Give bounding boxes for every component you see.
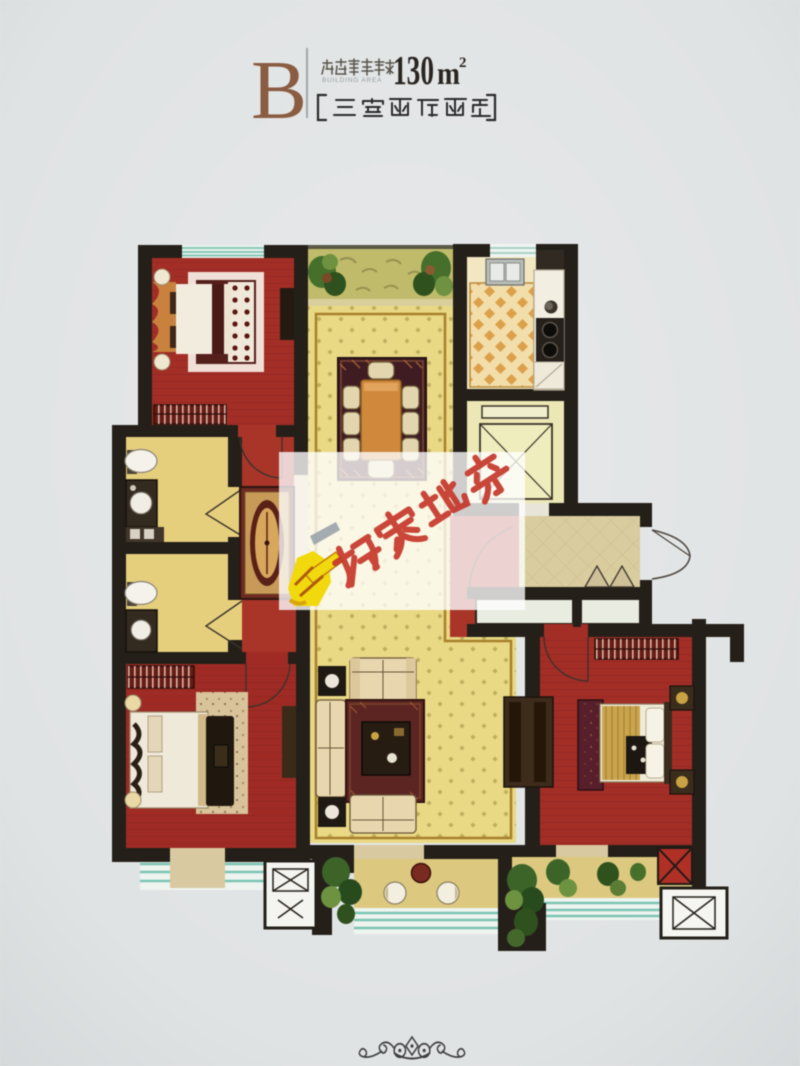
svg-text:m: m xyxy=(437,55,460,91)
svg-text:2: 2 xyxy=(459,55,467,71)
svg-text:BUILDING AREA: BUILDING AREA xyxy=(322,77,382,84)
svg-text:130: 130 xyxy=(393,47,434,93)
svg-text:B: B xyxy=(251,44,307,137)
